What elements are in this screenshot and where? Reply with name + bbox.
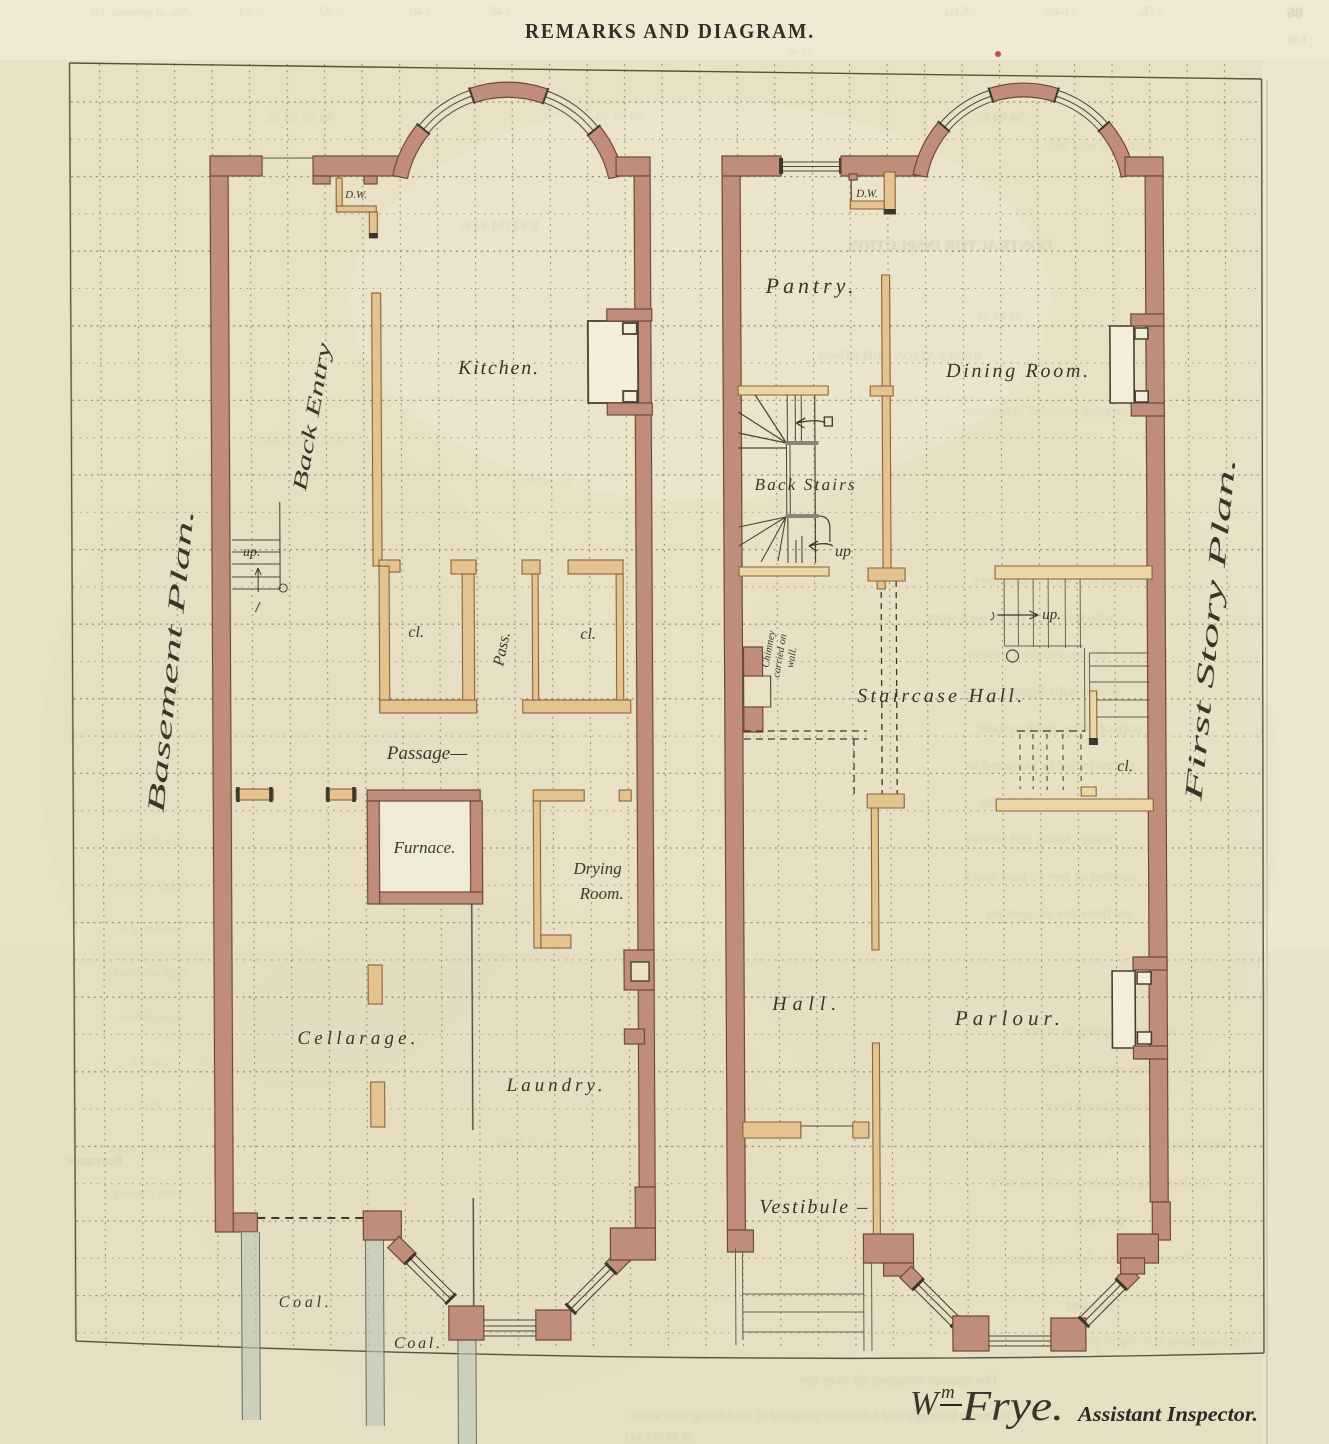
svg-text:; 648: ; 648 [1287,32,1313,47]
svg-text:Fire: Fire [139,1097,160,1112]
svg-text:; 40: ; 40 [409,5,430,20]
svg-text:; 32: ; 32 [319,5,340,20]
svg-text:size of rooms: size of rooms [115,833,185,848]
svg-text:just and: just and [1066,1298,1115,1314]
svg-text:; 64¼: ; 64¼ [944,5,976,20]
svg-text:84 46: 84 46 [785,43,815,58]
svg-text:m: m [941,1382,955,1403]
svg-text:light obtained: light obtained [114,965,186,980]
svg-text:water closets and privies: water closets and privies [966,832,1114,848]
svg-text:94 84 62: 94 84 62 [976,111,1025,126]
svg-text:ESTIMATE: ESTIMATE [461,218,539,234]
svg-text:Drying: Drying [572,859,621,878]
svg-text:number of feet of yard space: number of feet of yard space [964,869,1136,885]
svg-text:W: W [910,1385,941,1422]
svg-text:D.W.: D.W. [855,188,878,200]
svg-text:; 76.: ; 76. [1138,5,1163,20]
svg-text:Room.: Room. [579,884,624,903]
svg-text:cl.: cl. [1117,758,1133,775]
svg-text:Interior: Interior [130,1053,170,1068]
svg-text:up: up [835,543,851,560]
svg-text:up.: up. [243,545,261,560]
svg-text:of ventilation door: of ventilation door [1044,1099,1156,1115]
svg-text:86: 86 [1287,5,1303,22]
svg-text:were found may be: were found may be [470,948,570,963]
svg-text:; 24: ; 24 [239,5,260,20]
svg-text:per the order: per the order [526,473,593,488]
svg-text:84 95 88 86: 84 95 88 86 [267,111,334,126]
svg-text:D.W.: D.W. [344,189,367,201]
svg-text:Furnace.: Furnace. [392,838,455,857]
svg-text:Barometer read 29.6: Barometer read 29.6 [1046,138,1153,153]
svg-text:there may full flue for the op: there may full flue for the opening went… [972,1137,1228,1153]
svg-text:94 84 29: 94 84 29 [977,308,1023,323]
svg-text:height of story: height of story [112,877,188,892]
svg-text:thorough borought and habitual: thorough borought and habitually mounted… [629,1409,1011,1424]
svg-text:Back Stairs: Back Stairs [755,475,855,494]
svg-text:more rooms per flat: more rooms per flat [1040,1061,1160,1077]
svg-text:39 BUREAU: 39 BUREAU [625,1430,695,1444]
svg-text:; 64½: ; 64½ [1044,5,1076,20]
svg-text:No. of persons, 1st: No. of persons, 1st [91,4,189,19]
svg-text:Frye.: Frye. [961,1384,1064,1430]
svg-text:cl.: cl. [580,626,596,643]
svg-text:Passage—: Passage— [386,743,467,764]
svg-text:The same provided in measure: The same provided in measure [964,404,1136,419]
svg-text:feet of air per occupant there: feet of air per occupant therein [967,647,1152,663]
svg-text:; 46: ; 46 [489,5,510,20]
svg-text:REMARKS AND DIAGRAM.: REMARKS AND DIAGRAM. [525,19,815,43]
svg-text:from forward to by inspection: from forward to by inspection [1010,1251,1190,1267]
svg-text:are there fire escapes on: are there fire escapes on [987,906,1132,922]
svg-text:state of cellar and basement: state of cellar and basement [976,721,1143,737]
svg-text:to each floor: to each floor [116,1009,182,1024]
svg-text:Assistant Inspector.: Assistant Inspector. [1076,1402,1258,1426]
svg-text:the building furnished with th: the building furnished with that very [990,1175,1210,1191]
svg-text:Vestibule –: Vestibule – [759,1196,868,1218]
svg-text:46 94 84: 46 94 84 [596,109,645,124]
svg-text:up.: up. [1042,607,1061,623]
svg-text:cl.: cl. [408,624,424,641]
svg-text:rooms ceiled or plastered so: rooms ceiled or plastered so [966,758,1134,774]
svg-text:doors opening: doors opening [112,1185,187,1200]
